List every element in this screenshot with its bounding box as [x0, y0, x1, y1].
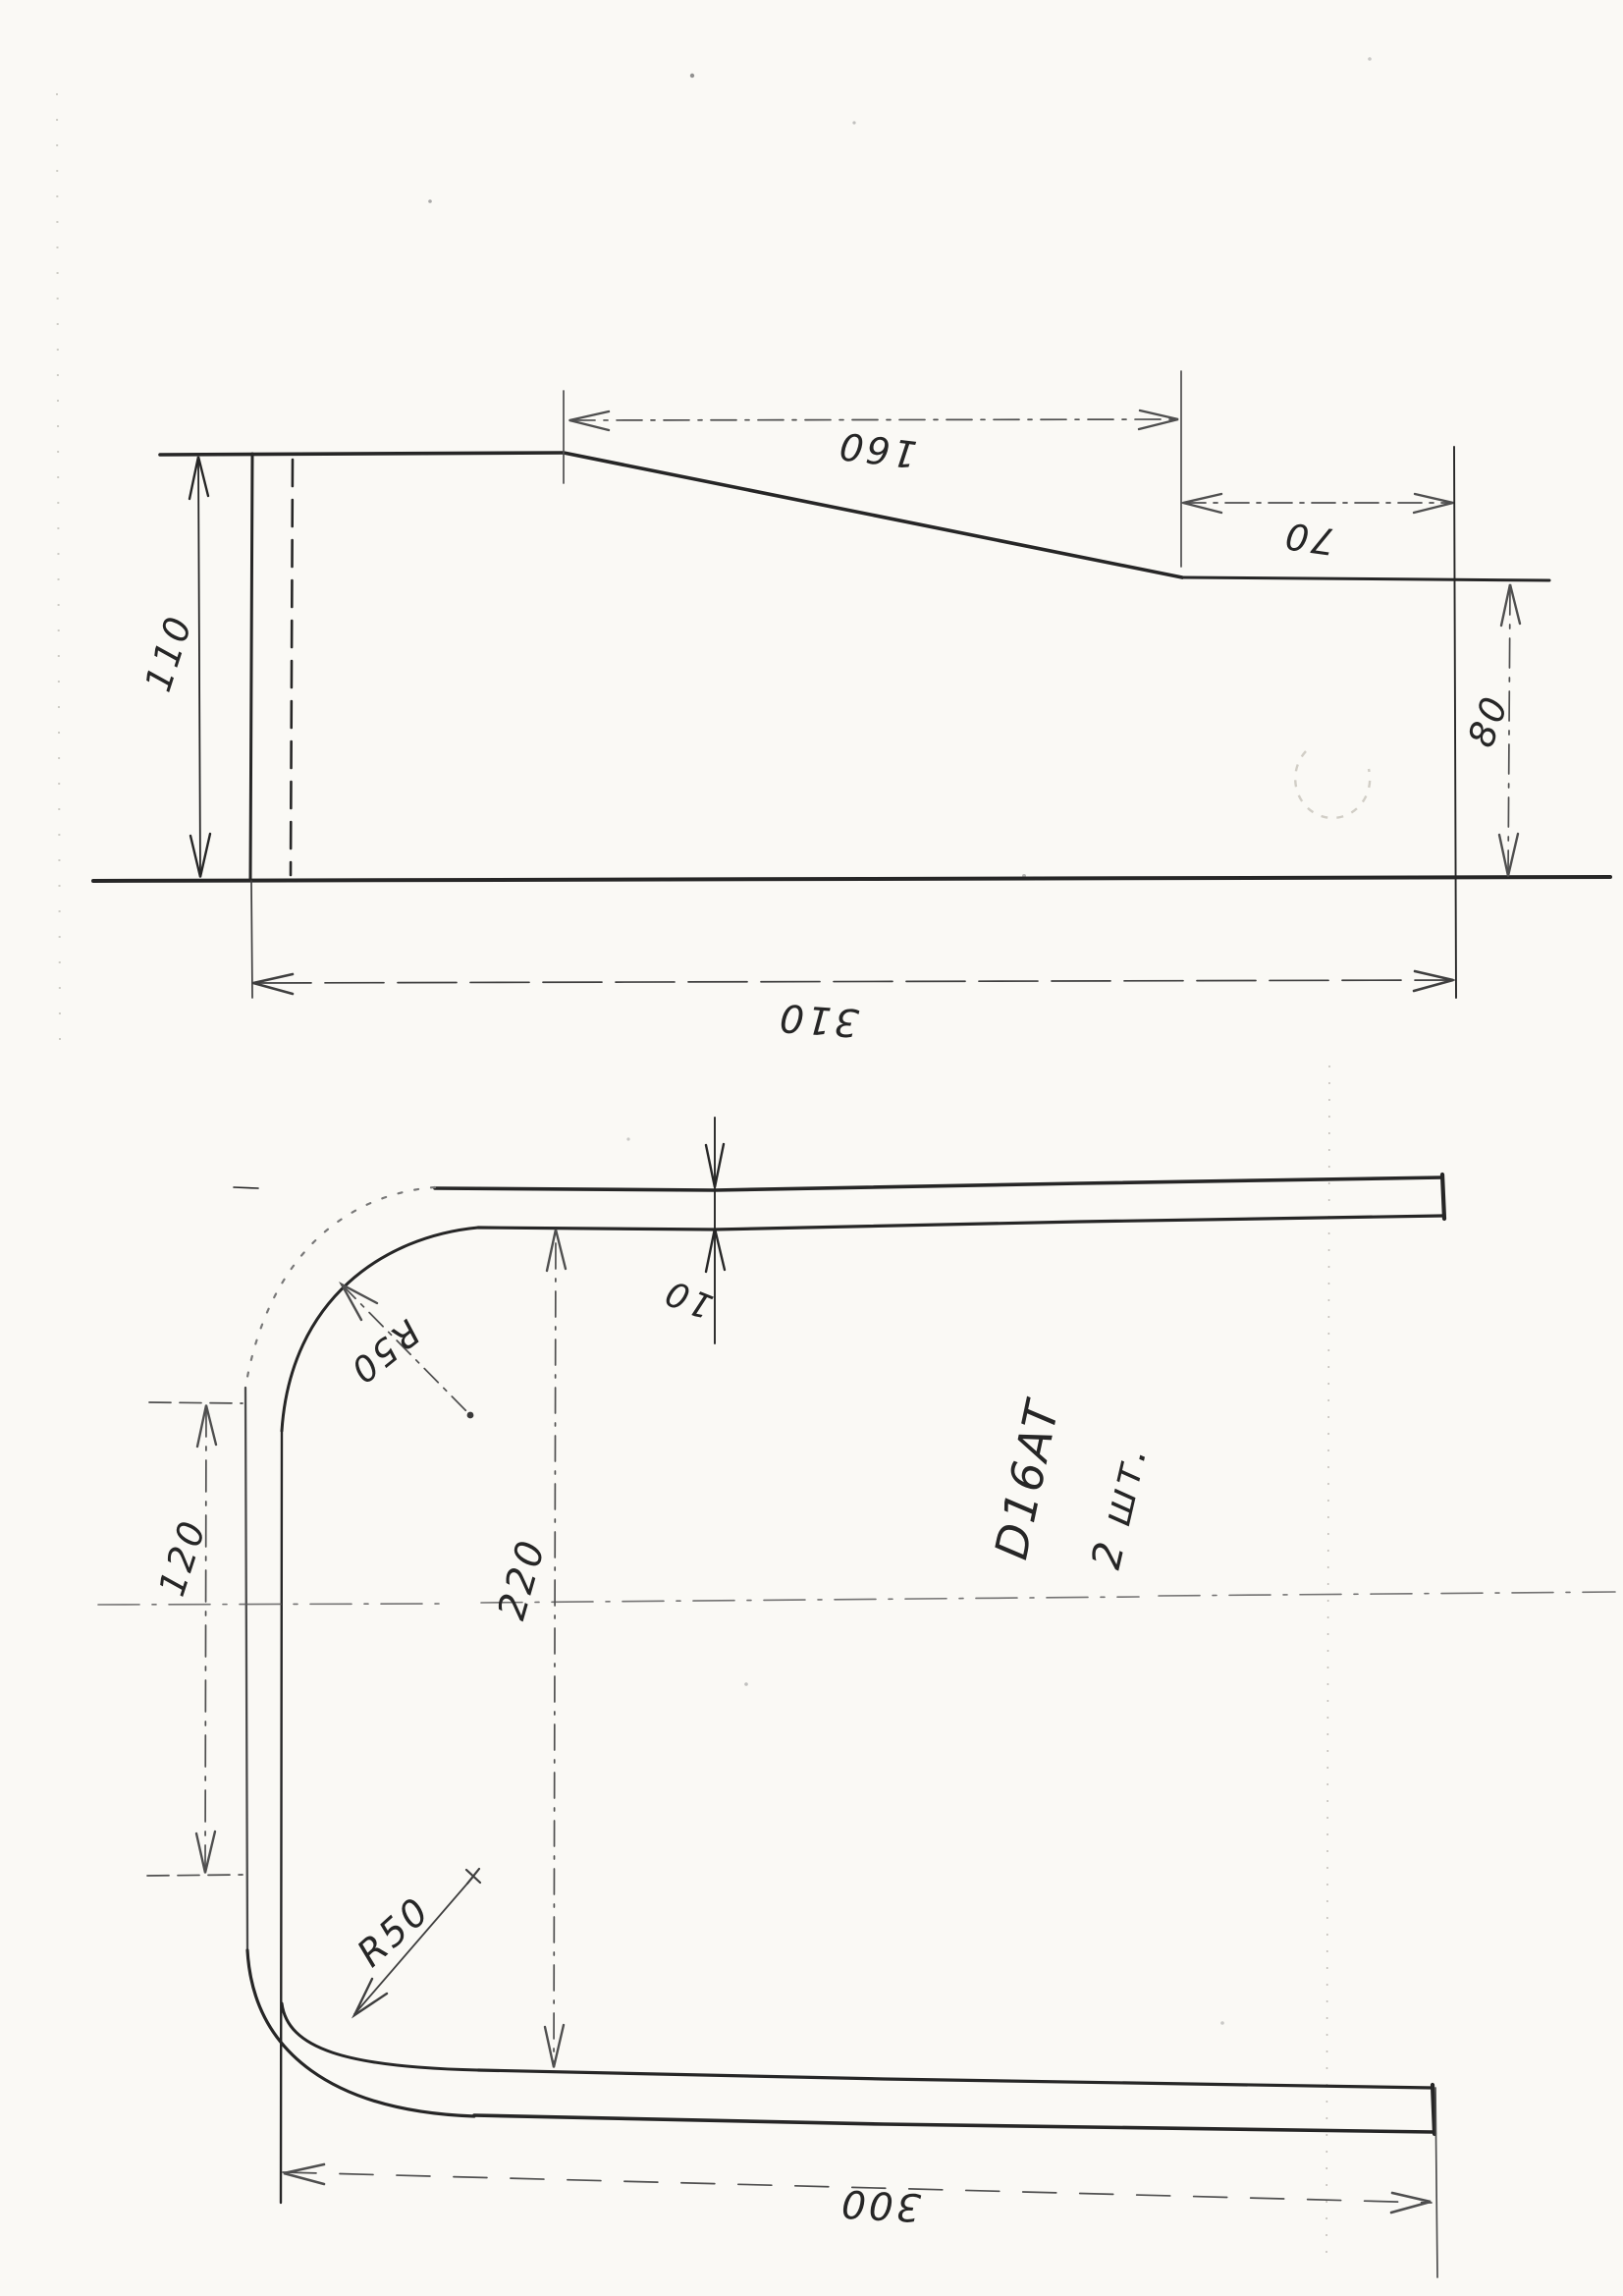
paper-speck — [1220, 2021, 1224, 2025]
hidden-bend-line — [291, 460, 293, 875]
radius-center-star — [466, 1869, 480, 1884]
bottom-inner-corner-arc — [282, 2003, 478, 2070]
symmetry-centerline — [98, 1592, 1615, 1605]
radius-center-point — [467, 1412, 474, 1419]
dim-120-bottom-ext — [147, 1875, 243, 1876]
dim-300-label: 300 — [838, 2180, 922, 2228]
pencil-smudge-circle — [1295, 751, 1370, 818]
top-strip-end-cap — [1442, 1175, 1444, 1219]
left-margin-dotted-artifact — [57, 93, 60, 1041]
arrow-left-icon — [253, 974, 293, 994]
dim-120 — [147, 1402, 243, 1876]
drawing-svg — [0, 0, 1623, 2296]
dim-300-right-ext — [1435, 2088, 1437, 2277]
left-inner-edge-and-300-ext — [281, 1431, 282, 2203]
bottom-view-group — [98, 1118, 1615, 2277]
dim-120-line — [205, 1405, 206, 1873]
part-right-lower-edge — [1182, 577, 1549, 580]
left-outer-edge — [245, 1388, 247, 1950]
dim-220 — [545, 1230, 566, 2067]
paper-speck — [428, 199, 432, 203]
dim-220-line — [554, 1230, 556, 2067]
arrow-right-icon — [1414, 971, 1453, 991]
dim-310-label: 310 — [776, 995, 860, 1045]
dim-120-top-ext — [149, 1402, 243, 1403]
dim-110-line — [198, 458, 200, 877]
paper-speck — [690, 74, 694, 78]
dim-110 — [189, 457, 210, 877]
scanned-drawing-page: 110 160 70 80 310 10 120 220 R50 R50 300… — [0, 0, 1623, 2296]
baseline-ground-line — [93, 877, 1610, 881]
bottom-strip-outer-edge — [474, 2115, 1433, 2132]
dim-80-line — [1508, 585, 1510, 876]
part-left-edge — [250, 454, 252, 879]
dim-310-left-ext — [251, 881, 252, 998]
dim-160-line — [569, 419, 1178, 420]
arrow-left-icon — [284, 2164, 324, 2184]
top-strip-outer-edge — [435, 1177, 1442, 1190]
part-top-edge — [160, 453, 564, 455]
bottom-strip-end-cap — [1433, 2085, 1434, 2134]
paper-speck — [626, 1137, 629, 1140]
bottom-strip-inner-edge — [478, 2070, 1433, 2088]
right-extension-line — [1454, 447, 1456, 998]
paper-speck — [852, 121, 855, 124]
paper-speck — [1368, 57, 1372, 61]
arrow-right-icon — [1391, 2193, 1431, 2213]
part-taper-edge — [564, 453, 1182, 577]
paper-crease-line — [1326, 1066, 1329, 2259]
top-strip-inner-edge — [478, 1216, 1442, 1230]
top-left-tick — [234, 1187, 258, 1188]
dim-70-label: 70 — [1280, 514, 1338, 563]
paper-speck — [744, 1682, 748, 1686]
dim-310-line — [252, 980, 1454, 983]
dim-310 — [251, 881, 1454, 998]
